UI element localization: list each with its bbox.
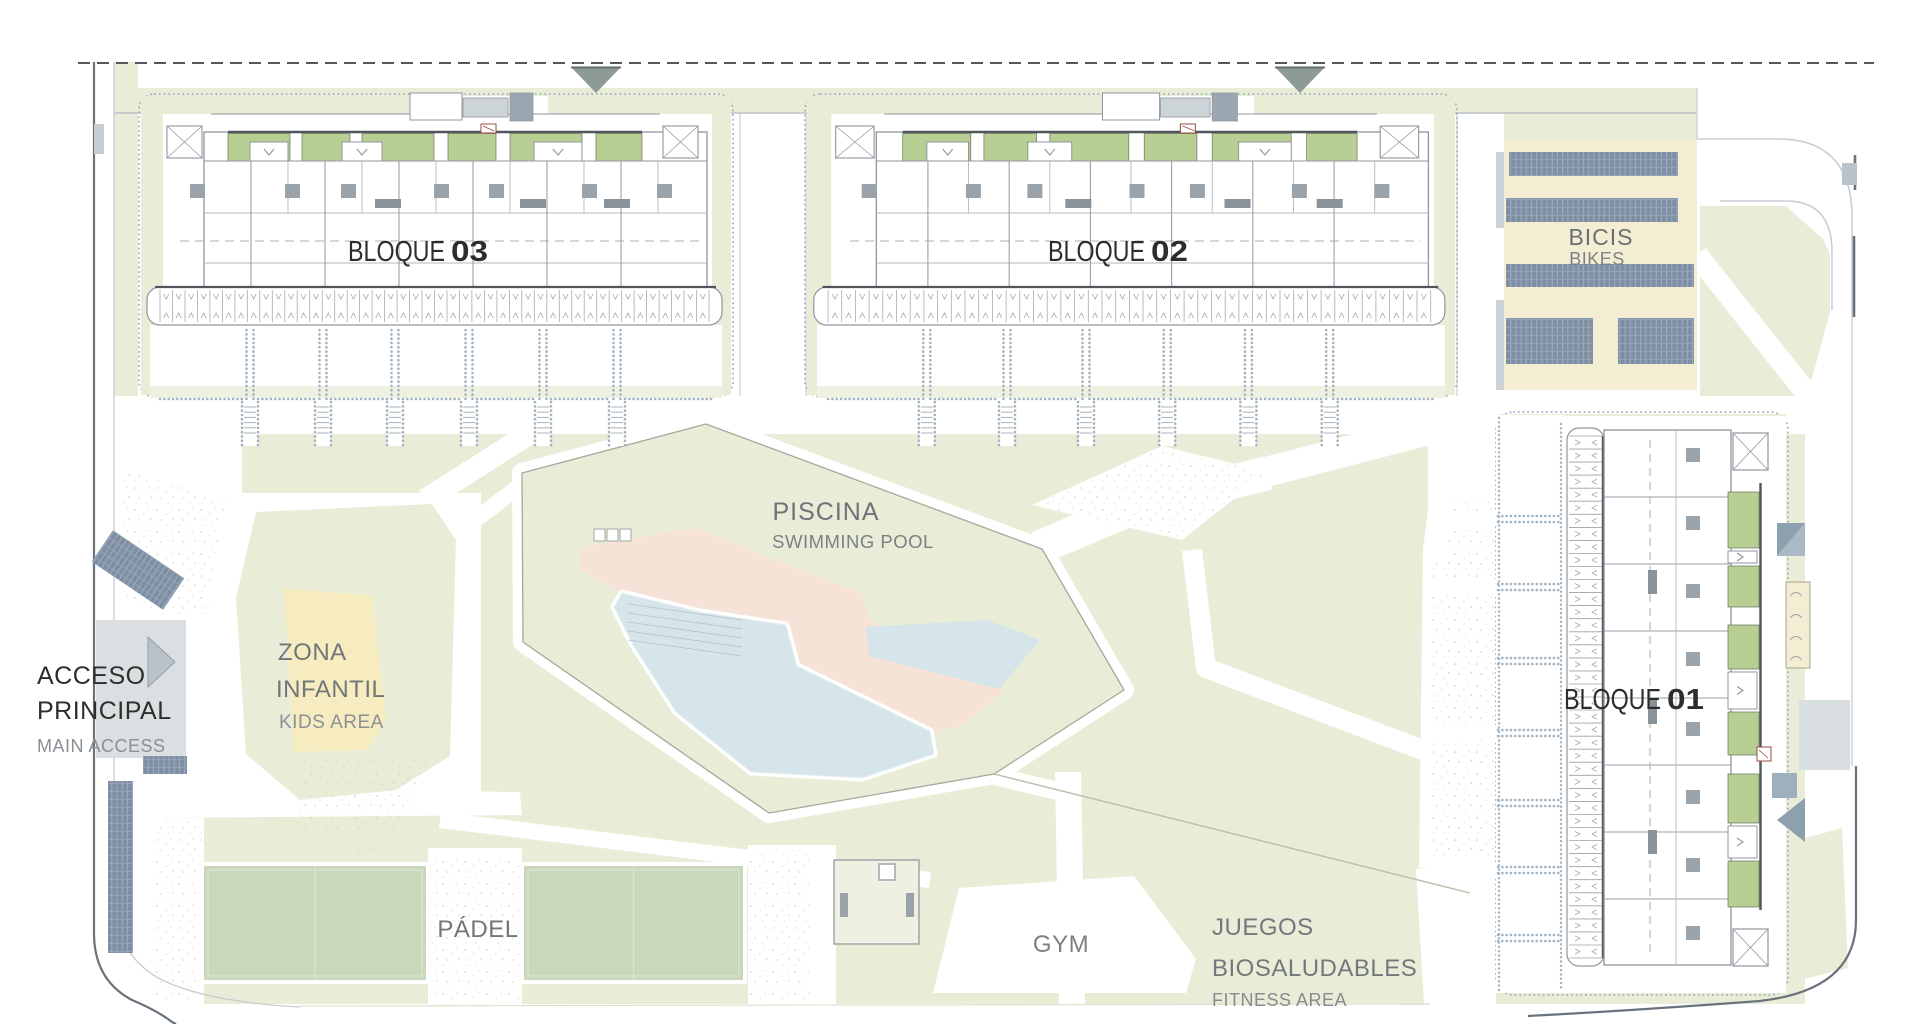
svg-text:BICIS: BICIS [1568,224,1633,250]
svg-text:02: 02 [1151,236,1188,268]
svg-text:FITNESS AREA: FITNESS AREA [1212,990,1347,1010]
svg-text:PÁDEL: PÁDEL [437,916,518,943]
svg-text:BIOSALUDABLES: BIOSALUDABLES [1212,955,1417,982]
svg-text:MAIN ACCESS: MAIN ACCESS [37,736,166,756]
svg-text:BLOQUE: BLOQUE [1564,684,1661,716]
svg-text:INFANTIL: INFANTIL [276,676,385,703]
svg-text:PISCINA: PISCINA [772,498,879,526]
svg-text:JUEGOS: JUEGOS [1212,914,1314,941]
svg-text:ACCESO: ACCESO [37,662,146,690]
svg-text:01: 01 [1667,684,1704,716]
svg-text:BLOQUE: BLOQUE [1048,236,1145,268]
svg-text:ZONA: ZONA [278,639,347,666]
svg-text:PRINCIPAL: PRINCIPAL [37,697,172,725]
svg-text:BIKES: BIKES [1569,249,1625,269]
svg-text:KIDS AREA: KIDS AREA [279,712,384,733]
svg-text:GYM: GYM [1033,931,1089,958]
svg-text:SWIMMING POOL: SWIMMING POOL [772,531,934,552]
svg-text:03: 03 [451,236,488,268]
svg-text:BLOQUE: BLOQUE [348,236,445,268]
